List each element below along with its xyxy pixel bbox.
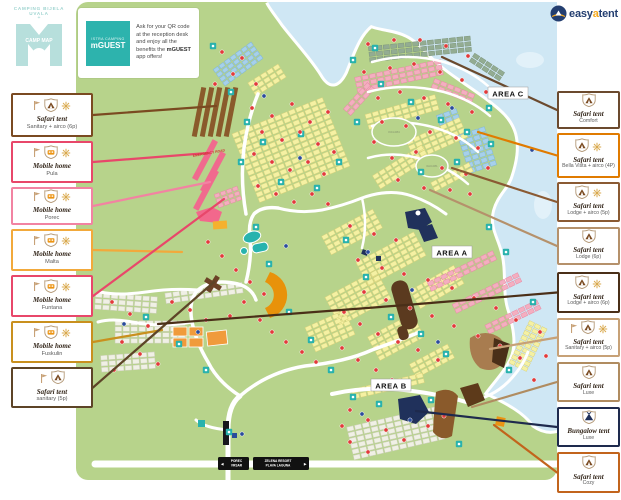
legend-icons [33,147,71,161]
mobile-home-shield-icon [44,279,58,298]
facility-glyph [390,316,393,319]
marker-dot-red [340,424,344,428]
marker-dot-red [298,130,302,134]
flag-icon [33,233,41,251]
marker-dot-red [326,110,330,114]
plot-cell [181,296,188,301]
plot-cell [102,305,109,310]
easyatent-icon [550,5,567,22]
marker-dot-red [374,368,378,372]
facility-icon [350,394,356,400]
flag-icon [33,279,41,297]
legend-item-porec: Mobile homePorec [11,187,93,225]
flag-icon [33,189,41,207]
marker-dot-red [358,322,362,326]
legend-icons [582,412,596,426]
easyatent-easy: easy [569,8,593,20]
marker-dot-red [518,356,522,360]
plot-cell [110,306,117,311]
legend-type: Safari tent [37,115,68,123]
facility-glyph [205,369,208,372]
facility-icon [328,367,334,373]
facility-glyph [262,141,265,144]
plot-cell [386,81,393,86]
facility-icon [486,224,492,230]
facility-icon [350,57,356,63]
easyatent-tent: tent [599,8,618,20]
marker-dot-red [408,306,412,310]
flag-icon [33,145,41,163]
marker-dot-red [440,166,444,170]
marker-dot-red [262,292,266,296]
plot-cell [427,61,434,66]
marker-dot-blue [360,412,364,416]
plot-cell [134,307,141,312]
marker-dot-red [128,312,132,316]
legend-icons [33,281,71,295]
plot-cell [398,49,404,54]
marker-dot-red [390,156,394,160]
marker-dot-red [310,192,314,196]
market-annex [213,221,228,230]
plot-cell [135,295,142,300]
legend-type: Mobile home [33,206,71,214]
facility-glyph [246,121,249,124]
marker-dot-red [366,418,370,422]
facility-icon [456,441,462,447]
marker-dot-red [290,102,294,106]
mguest-brand-inline: mGUEST [167,47,191,53]
plot-cell [458,48,464,53]
facility-icon [443,351,449,357]
legend-name: Porec [45,215,60,221]
legend-item-funtana: Mobile homeFuntana [11,275,93,317]
plot-cell [127,301,134,306]
marker-dot-red [468,192,472,196]
facility-icon [314,185,320,191]
marker-dot-red [356,258,360,262]
facility-glyph [330,369,333,372]
plot-range-label: 0A3-081 [426,164,438,168]
facility-icon [266,261,272,267]
legend-item-malta: Mobile homeMalta [11,229,93,271]
plot-cell [148,358,155,363]
easyatent-logo: easyatent [550,5,618,22]
plot-cell [370,79,377,84]
plot-cell [101,361,108,366]
facility-glyph [508,369,511,372]
marker-dot-red [426,278,430,282]
facility-icon [454,159,460,165]
marker-dot-red [220,254,224,258]
marker-dot-red [138,352,142,356]
marker-dot-red [384,428,388,432]
plot-cell [406,71,413,76]
airco-sun-icon [61,98,71,116]
marker-dot-red [412,62,416,66]
plot-cell [393,80,400,85]
plot-cell [220,290,227,295]
marker-dot-red [252,152,256,156]
plot-cell [385,76,392,81]
legend-name: Funtana [42,305,63,311]
camp-map-page: AREA AAREA BAREA CK04-0840A3-081EMERGENC… [0,0,621,500]
mguest-text: Ask for your QR code at the reception de… [130,20,199,66]
marker-dot-red [348,224,352,228]
marker-dot-red [356,358,360,362]
legend-icons [582,458,596,472]
marker-dot-red [404,124,408,128]
marker-dot-red [258,318,262,322]
plot-cell [435,45,441,50]
marker-dot-red [486,166,490,170]
marker-dot-red [332,150,336,154]
plot-cell [465,47,471,52]
facility-glyph [352,59,355,62]
facility-glyph [280,181,283,184]
facility-glyph [345,239,348,242]
facility-glyph [532,301,535,304]
airco-sun-icon [61,325,71,343]
legend-item-comfort: Safari tentComfort [557,91,620,129]
facility-glyph [488,107,491,110]
plot-cell [151,297,158,302]
marker-dot-red [340,346,344,350]
marker-dot-red [110,300,114,304]
plot-cell [101,355,108,360]
facility-glyph [440,119,443,122]
plot-cell [457,37,463,42]
bungalow-tent-shield-icon [582,410,596,429]
facility-icon [336,159,342,165]
plot-cell [173,297,180,302]
plot-cell [143,296,150,301]
road-sign-porec-arrow: ◄ [220,462,224,467]
camp-logo-monogram: CAMP MAP [13,20,65,70]
road-sign-resort-text: ZELENA RESORT [265,459,292,463]
marker-dot-red [380,120,384,124]
plot-cell [399,73,406,78]
legend-icons [33,327,71,341]
plot-cell [420,62,427,67]
plot-cell [376,72,383,77]
facility-icon [228,89,234,95]
legend-name: Luxe [583,391,594,397]
plot-cell [133,365,140,370]
facility-glyph [410,101,413,104]
marker-dot-red [450,286,454,290]
marker-dot-red [422,96,426,100]
mguest-text-post: app offers! [136,54,162,60]
legend-name: Cozy [583,481,595,487]
plot-cell [421,68,428,73]
legend-icons [575,141,602,155]
facility-glyph [338,161,341,164]
marker-dot-red [270,114,274,118]
facility-icon [378,81,384,87]
road-sign-porec-text: VRSAR [231,463,243,467]
facility-icon [372,45,378,51]
plot-cell [414,69,421,74]
marker-dot-blue [240,432,244,436]
plot-cell [148,352,155,357]
facility-icon [428,397,434,403]
facility-glyph [445,353,448,356]
plot-cell [369,52,375,57]
facility-glyph [505,251,508,254]
airco-sun-icon [61,145,71,163]
flag-icon [570,321,578,339]
facility-icon [464,129,470,135]
plot-cell [150,302,157,307]
facility-icon [210,43,216,49]
safari-tent-shield-icon [575,275,589,294]
facility-icon [363,274,369,280]
marker-dot-red [372,232,376,236]
mguest-card: ISTRA CAMPING mGUEST Ask for your QR cod… [78,8,199,78]
plot-cell [383,45,389,50]
marker-dot-blue [410,288,414,292]
plot-cell [155,339,162,344]
marker-dot-red [348,408,352,412]
legend-name: Sanitary + airco (6p) [27,124,78,130]
facility-icon [226,429,232,435]
plot-cell [413,41,419,46]
plot-cell [421,52,427,57]
facility-icon [506,367,512,373]
facility-glyph [458,443,461,446]
plot-cell [165,292,172,297]
mobile-home-shield-icon [44,145,58,164]
road-sign-resort-arrow: ► [303,462,307,467]
marker-dot-red [476,146,480,150]
facility-glyph [212,45,215,48]
plot-cell [464,36,470,41]
facility-glyph [365,276,368,279]
facility-glyph [420,171,423,174]
plot-cell [125,365,132,370]
marker-dot-red [494,306,498,310]
legend-icons [582,367,596,381]
marker-dot-red [380,266,384,270]
plot-cell [400,78,407,83]
legend-type: Mobile home [33,342,71,350]
facility-glyph [178,343,181,346]
legend-item-luxe: Bungalow tentLuxe [557,407,620,447]
plot-cell [150,308,157,313]
marker-dot-red [146,324,150,328]
facility-icon [203,367,209,373]
legend-name: Lodge + airco (5p) [567,211,609,217]
camp-logo: CAMPING BIJELA UVALA + CAMP MAP [8,6,70,82]
marker-dot-red [428,130,432,134]
marker-dot-red [248,280,252,284]
safari-tent-shield-icon [581,320,595,339]
plot-cell [126,307,133,312]
marker-dot-red [466,54,470,58]
marker-dot-red [240,56,244,60]
legend-item-lodge-airco-5p-: Safari tentLodge + airco (5p) [557,182,620,222]
marker-dot-red [270,160,274,164]
plot-cell [369,73,376,78]
marker-dot-red [322,172,326,176]
marker-dot-red [254,82,258,86]
marker-dot-red [448,188,452,192]
facility-glyph [268,263,271,266]
plot-cell [376,51,382,56]
plot-cell [427,40,433,45]
legend-name: sanitary (5p) [36,396,67,402]
safari-tent-shield-icon [582,229,596,248]
plot-cell [139,327,146,332]
airco-sun-icon [61,279,71,297]
facility-icon [253,224,259,230]
facility-glyph [380,83,383,86]
plot-cell [422,73,429,78]
plot-cell [163,327,170,332]
facility-glyph [488,226,491,229]
marker-dot-red [398,90,402,94]
facility-icon [388,314,394,320]
facility-icon [244,119,250,125]
legend-icons [575,278,602,292]
marker-dot-red [120,340,124,344]
marker-dot-red [366,450,370,454]
marker-dot-red [376,332,380,336]
marker-dot-red [284,340,288,344]
plot-cell [95,299,102,304]
facility-glyph [490,143,493,146]
reception-icon [198,420,205,427]
facility-glyph [316,187,319,190]
marker-dot-red [484,90,488,94]
marker-dot-red [430,314,434,318]
marker-dot-red [476,334,480,338]
facility-glyph [356,121,359,124]
mguest-badge: ISTRA CAMPING mGUEST [86,21,130,66]
facility-icon [343,237,349,243]
plot-cell [406,48,412,53]
plot-cell [450,43,456,48]
plot-cell [142,308,149,313]
marker-dot-red [234,268,238,272]
plot-cell [428,45,434,50]
plot-cell [436,50,442,55]
plot-cell [108,355,115,360]
plot-cell [391,49,397,54]
plot-cell [149,364,156,369]
marker-dot-red [422,186,426,190]
marker-dot-blue [408,418,412,422]
legend-icons [575,187,602,201]
facility-icon [238,159,244,165]
plot-cell [133,359,140,364]
facility-icon [488,141,494,147]
marker-dot-red [280,138,284,142]
plot-cell [398,43,404,48]
marker-dot-red [188,308,192,312]
safari-tent-shield-icon [582,365,596,384]
plot-cell [415,75,422,80]
marker-dot-red [538,330,542,334]
mobile-home-shield-icon [44,189,58,208]
legend-name: Bella Vista + airco (4P) [562,164,615,170]
legend-item-sanitary-airco-5p-: Safari tentSanitary + airco (5p) [557,318,620,357]
marker-dot-blue [450,106,454,110]
plot-cell [435,39,441,44]
marker-dot-red [376,96,380,100]
marker-dot-red [300,350,304,354]
legend-type: Mobile home [33,250,71,258]
airco-sun-icon [592,185,602,203]
legend-item-sanitary-airco-6p-: Safari tentSanitary + airco (6p) [11,93,93,137]
plot-cell [356,82,363,87]
marker-dot-red [362,290,366,294]
marker-dot-red [394,238,398,242]
area-label: AREA B [375,382,407,391]
plot-cell [131,327,138,332]
marker-dot-red [288,168,292,172]
legend-item-sanitary-5p-: Safari tentsanitary (5p) [11,367,93,408]
marker-dot-red [314,360,318,364]
plot-cell [116,354,123,359]
plot-cell [355,76,362,81]
plot-cell [428,51,434,56]
marker-dot-red [446,102,450,106]
marker-dot-red [426,424,430,428]
plot-cell [119,300,126,305]
mobile-home-shield-icon [44,233,58,252]
marker-dot-red [514,318,518,322]
facility-icon [418,331,424,337]
marker-dot-red [250,106,254,110]
sea-shallow [516,52,544,68]
plot-cell [101,367,108,372]
marker-dot-blue [196,330,200,334]
facility-glyph [255,226,258,229]
safari-tent-shield-icon [582,93,596,112]
marker-dot-red [436,358,440,362]
facility-glyph [378,403,381,406]
marker-dot-red [231,72,235,76]
easyatent-wordmark: easyatent [569,8,618,20]
marker-dot-red [242,300,246,304]
marker-dot-red [326,202,330,206]
marker-dot-red [316,142,320,146]
facility-icon [503,249,509,255]
facility-glyph [145,316,148,319]
plot-cell [140,358,147,363]
facility-glyph [310,339,313,342]
marker-dot-red [544,354,548,358]
plot-cell [127,295,134,300]
legend-icons [582,231,596,245]
marker-dot-red [396,340,400,344]
marker-dot-blue [122,322,126,326]
plot-cell [384,70,391,75]
facility-icon [486,105,492,111]
facility-icon [176,341,182,347]
plot-cell [408,76,415,81]
plot-cell [131,339,138,344]
facility-icon [408,99,414,105]
legend-name: Lodge + airco (6p) [567,301,609,307]
legend-name: Lodge (6p) [576,255,601,261]
marker-dot-red [220,50,224,54]
marker-dot-red [362,70,366,74]
safari-tent-shield-icon [51,370,65,389]
facility-glyph [230,91,233,94]
